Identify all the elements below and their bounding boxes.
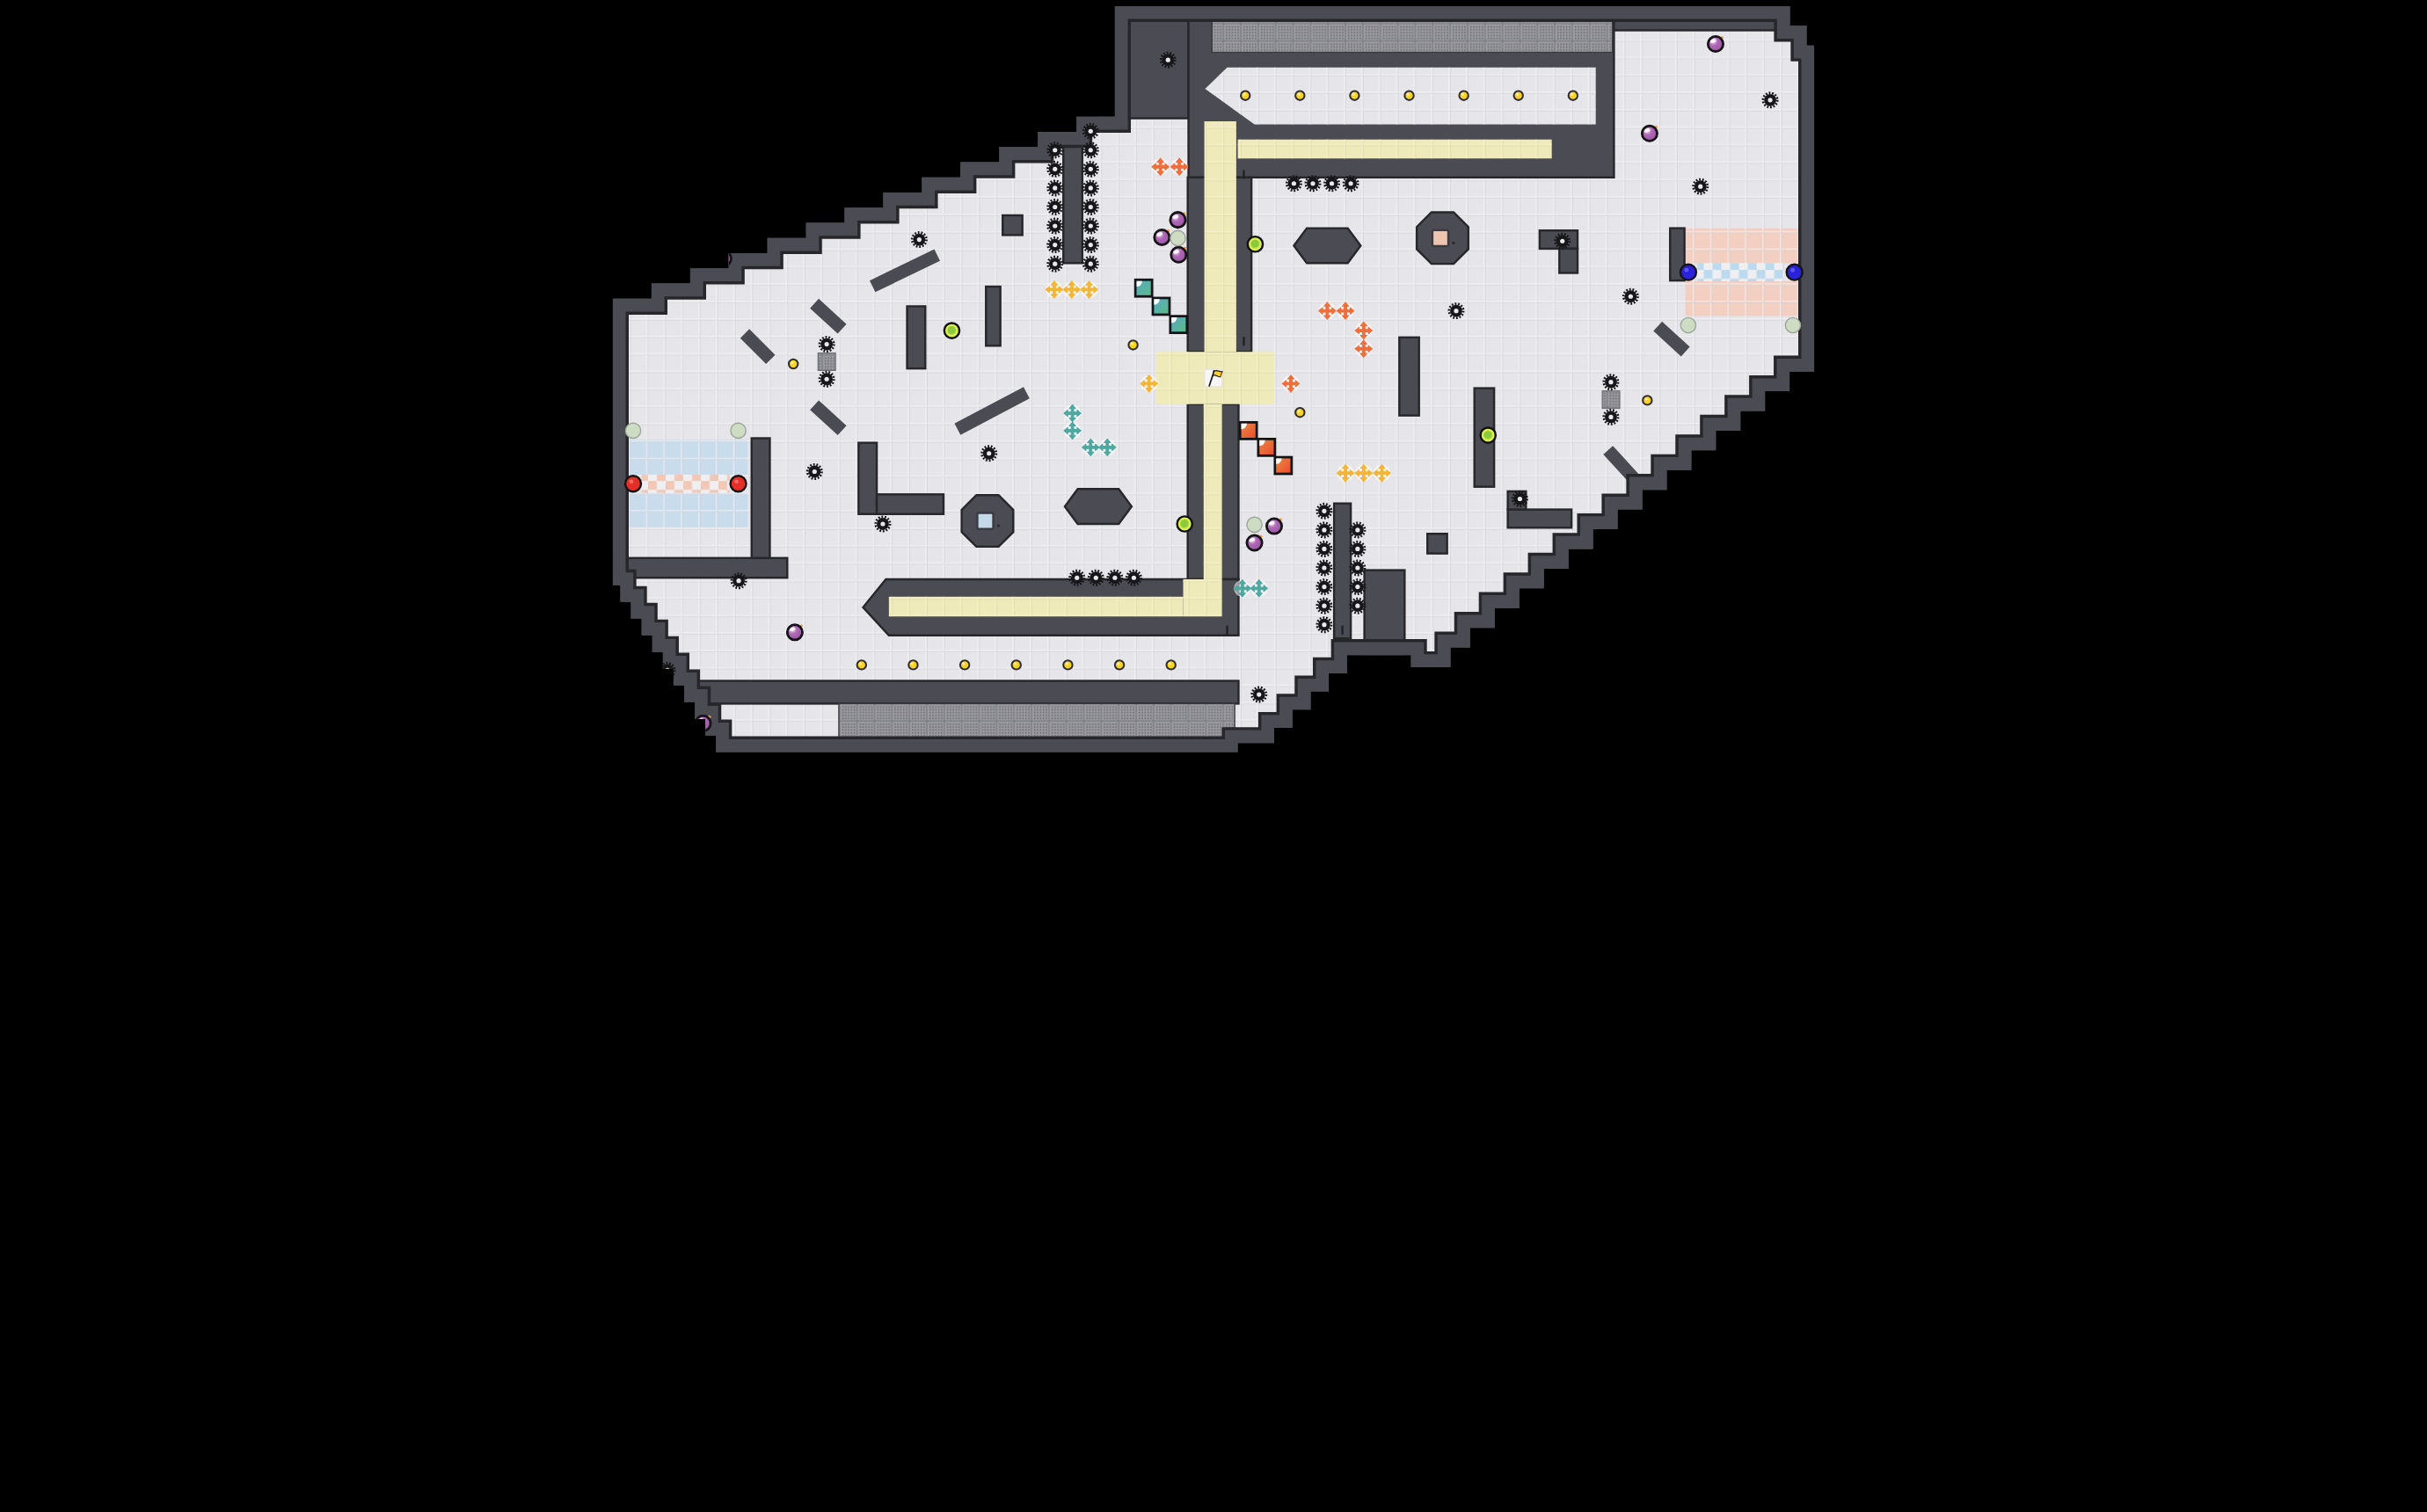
gold-dot	[1115, 660, 1124, 669]
door-marker	[1243, 170, 1244, 178]
fold-block-red	[1258, 439, 1275, 455]
boost-cross-orange	[1319, 302, 1336, 319]
textured-block	[818, 353, 835, 371]
wall-block	[652, 681, 1239, 704]
bomb	[787, 624, 803, 640]
textured-strip	[839, 703, 1235, 738]
hexagon-block	[1294, 229, 1360, 264]
boost-cross-orange	[1282, 375, 1299, 392]
boost-cross-yellow	[1337, 465, 1353, 482]
blue-team-boost	[1787, 265, 1803, 280]
inactive-pad	[1785, 317, 1800, 332]
wall-block	[877, 494, 944, 513]
yellow-track-grid	[1204, 404, 1222, 579]
powerup-orb	[1248, 236, 1263, 251]
bomb	[1247, 535, 1263, 551]
socket-inset	[977, 513, 993, 529]
boost-cross-yellow	[1355, 465, 1372, 482]
wall-block	[1002, 215, 1022, 235]
fold-block-teal	[1170, 316, 1187, 333]
boost-cross-yellow	[1141, 375, 1157, 392]
bomb	[1708, 36, 1724, 52]
powerup-orb	[1177, 516, 1192, 531]
inactive-pad	[731, 423, 746, 438]
boost-cross-teal	[1099, 439, 1116, 455]
socket-dot	[1452, 242, 1454, 244]
bomb	[1266, 519, 1282, 534]
gold-dot	[1063, 660, 1072, 669]
bomb	[1155, 229, 1170, 245]
yellow-track-grid	[1238, 140, 1552, 159]
socket-dot	[997, 525, 1000, 527]
gold-dot	[1167, 660, 1176, 669]
gold-dot	[1404, 91, 1413, 100]
wall-block	[1063, 135, 1082, 264]
powerup-orb	[1481, 427, 1496, 442]
door-marker	[1243, 337, 1244, 345]
powerup-orb	[944, 323, 959, 338]
boost-cross-teal	[1064, 404, 1081, 421]
gold-dot	[1295, 408, 1304, 417]
boost-cross-orange	[1171, 158, 1188, 175]
socket-inset	[1432, 230, 1448, 246]
gold-dot	[857, 660, 866, 669]
boost-cross-yellow	[1063, 281, 1080, 298]
gold-dot	[1350, 91, 1359, 100]
boost-cross-yellow	[1046, 281, 1062, 298]
wall-block	[986, 287, 1000, 345]
boost-cross-orange	[1152, 158, 1169, 175]
inactive-pad	[1170, 230, 1185, 245]
wall-block	[1559, 249, 1578, 273]
boost-cross-teal	[1082, 439, 1099, 455]
gold-dot	[1643, 396, 1651, 404]
yellow-track-grid	[1205, 121, 1236, 352]
level-map-canvas[interactable]	[607, 0, 1820, 759]
boost-cross-orange	[1355, 322, 1372, 338]
level-map-viewport[interactable]	[607, 0, 1820, 759]
door-marker	[1226, 626, 1228, 635]
boost-cross-teal	[1064, 422, 1081, 439]
endzone-checker-pink	[642, 475, 730, 493]
wall-block	[1334, 504, 1351, 639]
fold-block-teal	[1153, 298, 1170, 315]
wall-block	[752, 439, 770, 558]
boost-cross-yellow	[1374, 465, 1390, 482]
blue-team-boost	[1680, 265, 1696, 280]
inactive-pad	[1680, 317, 1695, 332]
endzone-checker-blue	[1697, 263, 1783, 281]
boost-cross-teal	[1234, 580, 1250, 597]
gold-dot	[1128, 340, 1137, 349]
gold-dot	[1012, 660, 1021, 669]
gold-dot	[1514, 91, 1523, 100]
bomb	[1171, 247, 1187, 263]
gold-dot	[789, 360, 798, 368]
yellow-track-grid	[889, 597, 1184, 616]
gold-dot	[1459, 91, 1468, 100]
gold-dot	[960, 660, 969, 669]
wall-block	[1399, 338, 1418, 416]
boost-cross-teal	[1250, 580, 1267, 597]
boost-cross-orange	[1337, 302, 1353, 319]
yellow-track-grid	[1184, 579, 1222, 616]
boost-cross-yellow	[1081, 281, 1097, 298]
boost-cross-orange	[1355, 340, 1372, 357]
red-team-boost	[731, 476, 747, 491]
door-marker	[1341, 626, 1343, 635]
wall-block	[1427, 534, 1447, 553]
wall-block	[613, 558, 787, 578]
gold-dot	[1569, 91, 1578, 100]
wall-block	[858, 443, 877, 514]
fold-block-red	[1275, 457, 1292, 474]
fold-block-red	[1240, 422, 1257, 439]
wall-block	[1508, 510, 1571, 528]
gold-dot	[1241, 91, 1250, 100]
hexagon-block	[1065, 489, 1132, 524]
gold-dot	[908, 660, 917, 669]
bomb	[1642, 126, 1658, 142]
wall-block	[907, 306, 926, 368]
red-team-boost	[625, 476, 641, 491]
inactive-pad	[625, 423, 640, 438]
inactive-pad	[1247, 517, 1262, 532]
textured-strip	[1212, 19, 1612, 52]
gold-dot	[1295, 91, 1304, 100]
bomb	[1170, 212, 1186, 228]
fold-block-teal	[1135, 280, 1152, 296]
white-corridor-grid	[1206, 68, 1596, 125]
textured-block	[1602, 391, 1620, 409]
